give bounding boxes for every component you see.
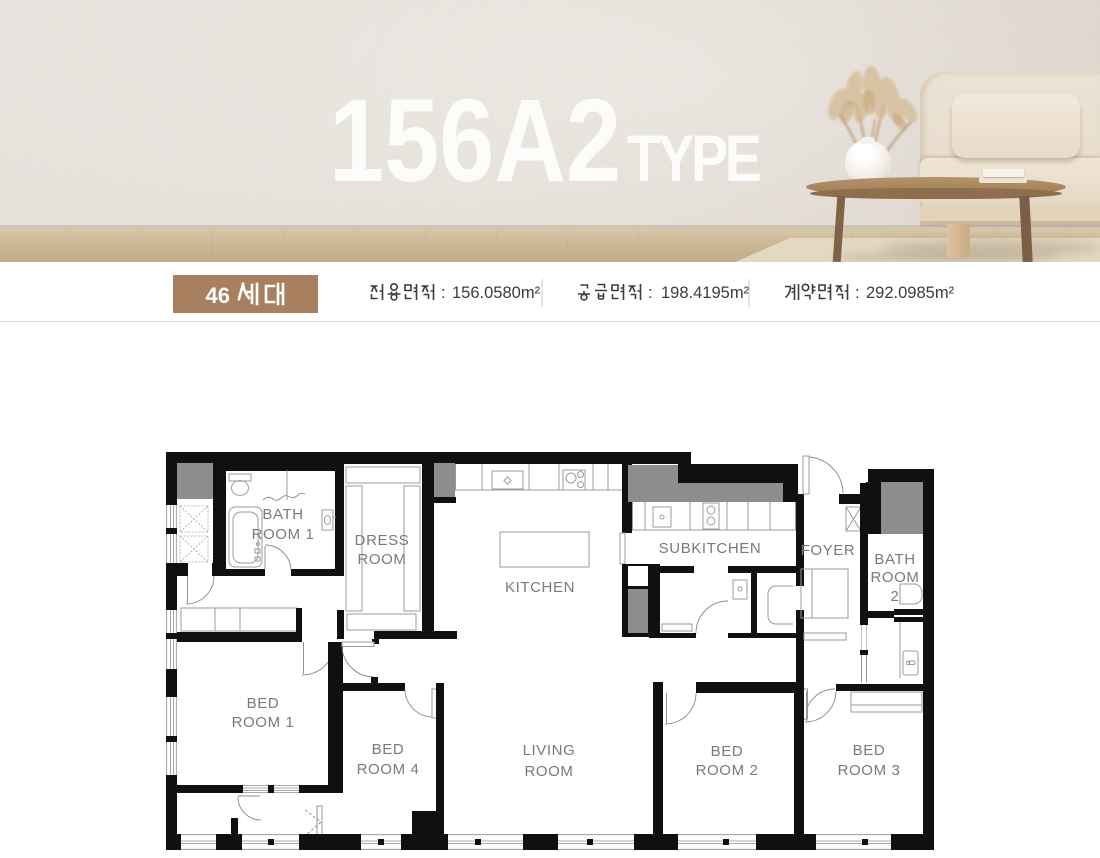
- svg-text:ROOM: ROOM: [870, 569, 919, 586]
- svg-text::: :: [648, 284, 653, 302]
- svg-text:BATH: BATH: [262, 506, 303, 523]
- svg-text:DRESS: DRESS: [355, 532, 410, 549]
- svg-text:198.4195m²: 198.4195m²: [661, 284, 750, 302]
- svg-text:KITCHEN: KITCHEN: [505, 579, 575, 596]
- svg-text:LIVING: LIVING: [523, 742, 576, 759]
- svg-text:FOYER: FOYER: [801, 542, 856, 559]
- svg-text:ROOM 4: ROOM 4: [357, 761, 420, 778]
- svg-text:46: 46: [206, 283, 230, 308]
- svg-text::: :: [855, 284, 860, 302]
- svg-text:ROOM 3: ROOM 3: [838, 762, 901, 779]
- svg-text:SUBKITCHEN: SUBKITCHEN: [659, 540, 762, 557]
- svg-text:ROOM 1: ROOM 1: [252, 526, 315, 543]
- svg-text:2: 2: [891, 588, 900, 605]
- svg-text:ROOM: ROOM: [524, 763, 573, 780]
- svg-text:ROOM 2: ROOM 2: [696, 762, 759, 779]
- svg-text:ROOM: ROOM: [357, 551, 406, 568]
- svg-text:292.0985m²: 292.0985m²: [866, 284, 955, 302]
- svg-text:156.0580m²: 156.0580m²: [452, 284, 541, 302]
- svg-text::: :: [441, 284, 446, 302]
- svg-text:BED: BED: [247, 695, 280, 712]
- svg-text:BATH: BATH: [874, 551, 915, 568]
- svg-text:BED: BED: [372, 741, 405, 758]
- svg-text:ROOM 1: ROOM 1: [232, 714, 295, 731]
- svg-text:BED: BED: [853, 742, 886, 759]
- svg-text:BED: BED: [711, 743, 744, 760]
